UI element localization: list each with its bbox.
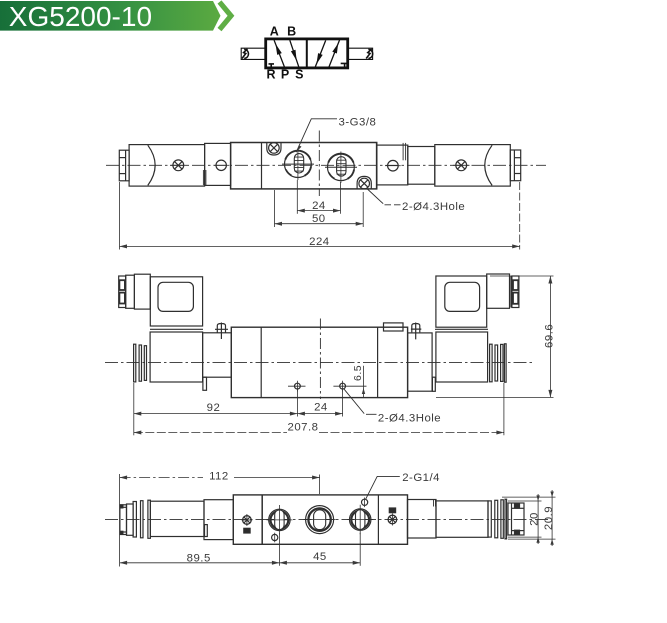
svg-text:P: P (281, 67, 289, 81)
svg-text:2-G1/4: 2-G1/4 (402, 472, 440, 484)
svg-text:2-Ø4.3Hole: 2-Ø4.3Hole (402, 201, 465, 213)
svg-text:3-G3/8: 3-G3/8 (339, 116, 377, 128)
svg-text:20: 20 (529, 512, 541, 526)
svg-text:S: S (295, 67, 303, 81)
svg-text:112: 112 (209, 471, 229, 483)
svg-text:24: 24 (314, 401, 328, 413)
svg-text:R: R (266, 67, 275, 81)
svg-text:50: 50 (312, 213, 326, 225)
svg-text:89.5: 89.5 (187, 552, 211, 564)
svg-text:24: 24 (312, 200, 326, 212)
svg-text:20.9: 20.9 (543, 506, 555, 530)
svg-text:XG5200-10: XG5200-10 (9, 1, 152, 32)
svg-text:6.5: 6.5 (352, 365, 364, 381)
svg-text:B: B (287, 25, 296, 39)
svg-text:A: A (270, 25, 279, 39)
svg-text:224: 224 (309, 236, 330, 248)
svg-text:69.6: 69.6 (544, 324, 556, 348)
svg-text:207.8: 207.8 (287, 422, 318, 434)
svg-text:92: 92 (207, 402, 221, 414)
svg-text:2-Ø4.3Hole: 2-Ø4.3Hole (378, 412, 441, 424)
svg-text:45: 45 (313, 551, 327, 563)
